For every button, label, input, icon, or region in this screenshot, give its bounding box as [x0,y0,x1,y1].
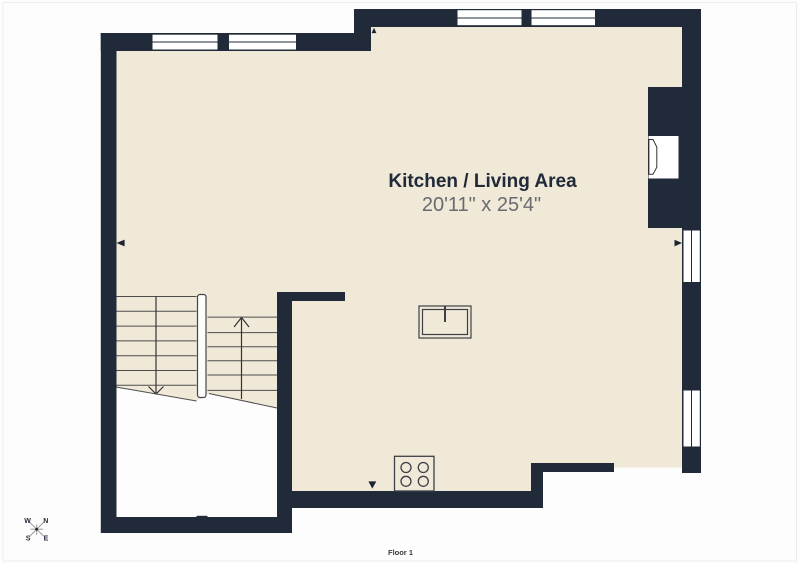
svg-text:W: W [24,518,31,525]
svg-text:Floor 1: Floor 1 [388,548,413,557]
svg-text:E: E [44,536,49,543]
svg-text:Kitchen / Living Area: Kitchen / Living Area [388,171,577,192]
svg-text:S: S [26,536,31,543]
svg-text:20'11" x 25'4": 20'11" x 25'4" [422,194,541,216]
svg-text:N: N [43,518,48,525]
